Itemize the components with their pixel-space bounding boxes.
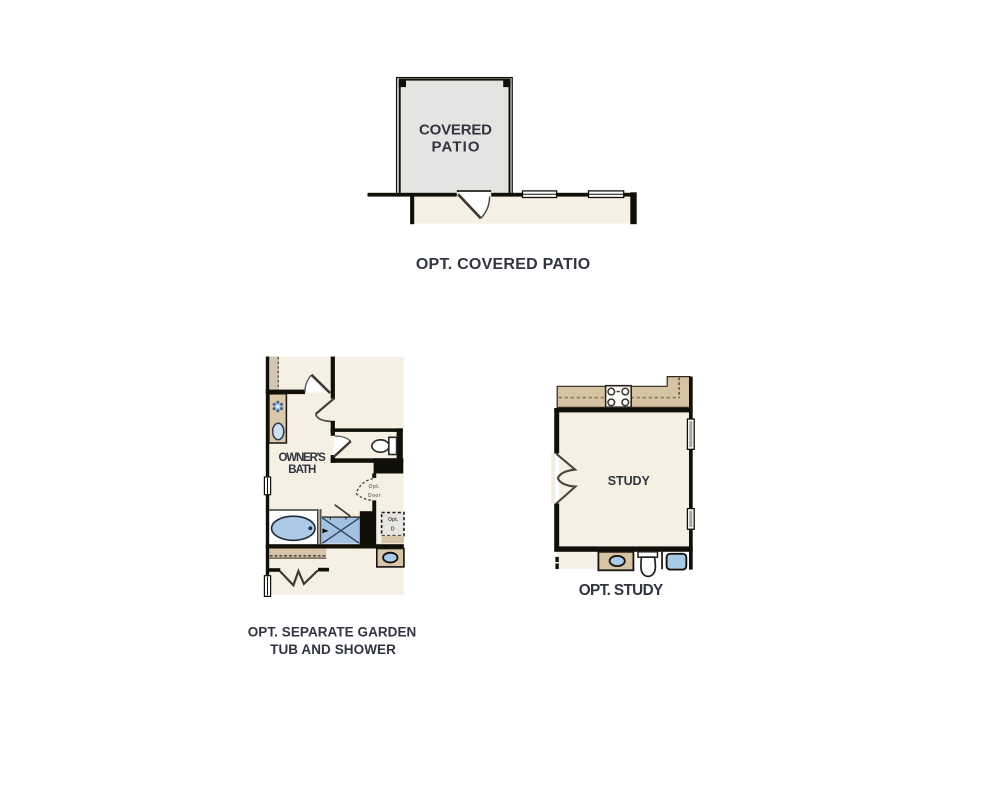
svg-text:D: D — [391, 526, 395, 532]
svg-text:TUB AND SHOWER: TUB AND SHOWER — [270, 642, 396, 657]
svg-text:Opt.: Opt. — [388, 517, 399, 523]
svg-text:STUDY: STUDY — [608, 474, 651, 488]
svg-text:OPT. COVERED PATIO: OPT. COVERED PATIO — [416, 256, 590, 273]
svg-text:COVERED: COVERED — [419, 122, 492, 139]
svg-text:Door: Door — [368, 493, 381, 499]
svg-text:OWNER'S: OWNER'S — [279, 452, 327, 464]
svg-text:OPT. SEPARATE GARDEN: OPT. SEPARATE GARDEN — [248, 625, 417, 640]
svg-text:BATH: BATH — [288, 464, 316, 476]
svg-text:Opt.: Opt. — [369, 484, 381, 490]
svg-text:OPT. STUDY: OPT. STUDY — [579, 582, 664, 599]
svg-text:PATIO: PATIO — [432, 139, 480, 156]
